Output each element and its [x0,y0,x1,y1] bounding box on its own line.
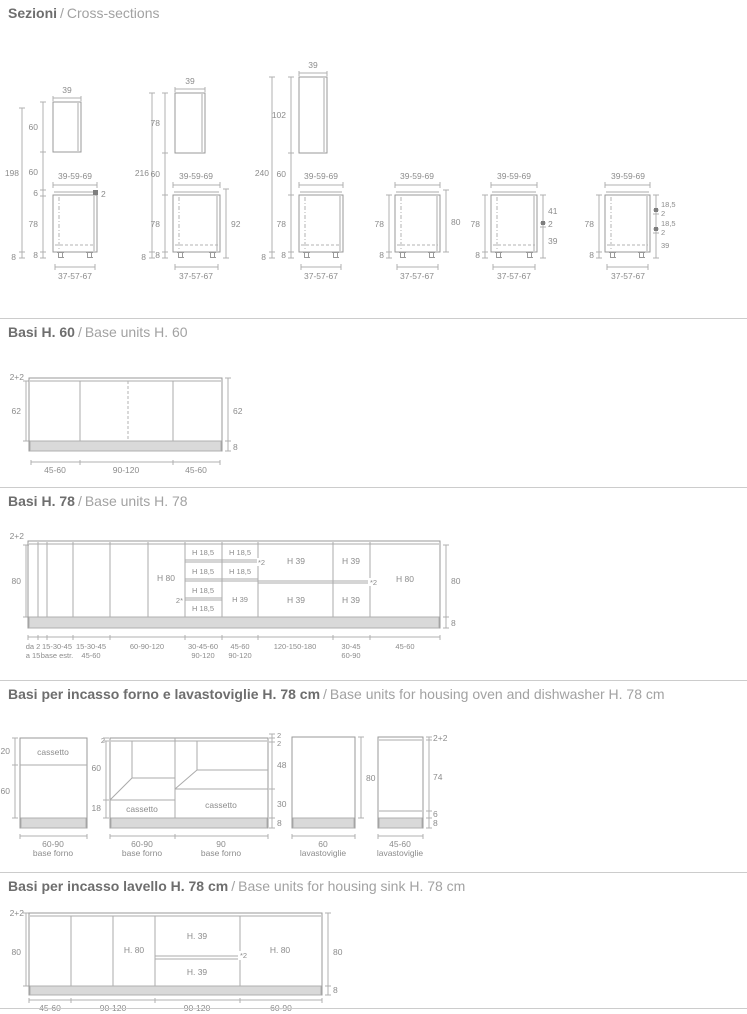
dim-label: 2 [548,219,553,229]
width-label: 45-60 [81,651,100,660]
wall-width-label: 39 [185,76,195,86]
feet-height-label: 8 [11,252,16,262]
base-cabinet-outline [605,195,650,252]
right-height-label: 80 [451,217,461,227]
cross-section-2: 216 8 39 78 60 78 8 39-59-69 92 37-57-67 [135,76,241,281]
wall-cabinet-outline [299,77,327,153]
dim-label: 20 [1,746,11,756]
total-height-label: 198 [5,168,19,178]
cell-label: H. 80 [124,945,145,955]
base-bottom-width-label: 37-57-67 [58,271,92,281]
section-divider [0,680,747,681]
dim-label: 6 [33,188,38,198]
cross-section-3: 240 8 39 102 60 78 8 39-59-69 37-57-67 [255,60,343,281]
dim-label: 74 [433,772,443,782]
width-label: 45-60 [230,642,249,651]
height-label: 80 [333,947,343,957]
section-title-cross-sections: Sezioni/Cross-sections [8,5,160,22]
base-top-width-label: 39-59-69 [611,171,645,181]
section-title-oven-dishwasher: Basi per incasso forno e lavastoviglie H… [8,686,665,703]
section-divider [0,487,747,488]
top-panel-label: 2+2 [10,372,25,382]
right-height-label: 92 [231,219,241,229]
cell-label: H 80 [396,574,414,584]
caption-label: base forno [201,848,241,858]
height-label: 80 [12,576,22,586]
section-divider [0,318,747,319]
width-label: 120-150-180 [274,642,317,651]
base-top-width-label: 39-59-69 [58,171,92,181]
total-height-label: 240 [255,168,269,178]
cell-label: H 18,5 [192,586,214,595]
oven-base-unit-a: 20 60 cassetto 60-90 base forno [1,738,87,858]
base-cabinet-outline [173,195,220,252]
plinth [111,818,267,828]
height-label: 62 [233,406,243,416]
base-units-h78-drawing: 2+2 80 H 80 H 18,5 H 18,5 H 18,5 H 18,5 … [0,530,747,662]
cross-sections-drawing: 198 8 39 60 60 6 78 8 39-59-69 2 37-57-6… [0,55,747,305]
height-label: 80 [12,947,22,957]
plinth [30,986,321,995]
plinth [29,617,439,628]
base-top-width-label: 39-59-69 [497,171,531,181]
width-label: a 15 [26,651,41,660]
base-units-h60-drawing: 2+2 62 62 8 45-60 90-120 45-60 [0,370,747,482]
dim-label: 8 [433,818,438,828]
oven-base-unit-b: 2 60 18 cassetto cassetto 2 2 48 30 8 60… [92,731,287,858]
dim-label: 80 [366,773,376,783]
elevation-outline [29,378,222,451]
section-title-basi-h78: Basi H. 78/Base units H. 78 [8,493,188,510]
dim-label: 60 [29,167,39,177]
dim-label: 8 [277,818,282,828]
base-cabinet-outline [53,195,97,252]
title-separator: / [75,324,85,340]
top-panel-label: 2+2 [10,531,25,541]
width-label: 15-30-45 [42,642,72,651]
title-italian: Basi per incasso lavello H. 78 cm [8,878,228,894]
cell-label: H 39 [287,556,305,566]
base-cabinet-outline [395,195,440,252]
width-label: 60-90 [341,651,360,660]
shelf-marker [654,227,658,231]
drawer-label: cassetto [126,804,158,814]
base-cabinet-outline [299,195,343,252]
page-bottom-divider [0,1008,747,1009]
dishwasher-unit-d: 2+2 74 6 8 45-60 lavastoviglie [377,733,448,858]
dim-label: 78 [585,219,595,229]
dim-label: 2 [661,228,665,237]
title-english: Base units H. 78 [85,493,188,509]
base-top-width-label: 39-59-69 [179,171,213,181]
dim-label: 78 [375,219,385,229]
plinth-label: 8 [233,442,238,452]
cell-label: H 18,5 [229,548,251,557]
panel-marker-label: *2 [258,558,265,567]
dim-label: 60 [151,169,161,179]
total-height-label: 216 [135,168,149,178]
dim-label: 78 [151,219,161,229]
unit-outline [292,737,355,828]
width-label: 15-30-45 [76,642,106,651]
panel-marker-label: *2 [240,951,247,960]
drawer-label: cassetto [205,800,237,810]
width-label: 90-120 [113,465,140,475]
top-panel-label: 2+2 [10,908,25,918]
cell-label: H 39 [342,595,360,605]
dim-label: 41 [548,206,558,216]
dim-label: 78 [29,219,39,229]
cell-label: H 80 [157,573,175,583]
dim-label: 2+2 [433,733,448,743]
feet-height-label: 8 [261,252,266,262]
cell-label: H 18,5 [192,604,214,613]
plinth [379,818,422,828]
shelf-marker [654,208,658,212]
title-italian: Basi per incasso forno e lavastoviglie H… [8,686,320,702]
title-italian: Basi H. 78 [8,493,75,509]
plinth [21,818,86,828]
unit-outline [110,738,268,828]
oven-dishwasher-units-drawing: 20 60 cassetto 60-90 base forno 2 60 18 … [0,720,747,866]
drawer-label: cassetto [37,747,69,757]
section-divider [0,872,747,873]
feet [399,253,435,258]
base-bottom-width-label: 37-57-67 [304,271,338,281]
width-label: 45-60 [185,465,207,475]
plinth [30,441,221,451]
dim-label: 18 [92,803,102,813]
title-english: Cross-sections [67,5,160,21]
dim-label: 2 [277,739,281,748]
cell-label: H 18,5 [192,548,214,557]
cell-label: H. 80 [270,945,291,955]
feet [177,253,216,258]
dim-label: 48 [277,760,287,770]
base-top-width-label: 39-59-69 [304,171,338,181]
feet [57,253,93,258]
title-italian: Basi H. 60 [8,324,75,340]
height-label: 80 [451,576,461,586]
dim-label: 102 [272,110,286,120]
caption-label: lavastoviglie [300,848,347,858]
dim-label: 8 [475,250,480,260]
cross-section-5: 78 8 39-59-69 41 2 39 37-57-67 [471,171,558,281]
sink-units-drawing: 2+2 80 H. 80 H. 39 *2 H. 39 H. 80 80 8 4… [0,905,747,1014]
dim-label: 78 [277,219,287,229]
title-italian: Sezioni [8,5,57,21]
height-label: 62 [12,406,22,416]
title-separator: / [57,5,67,21]
dim-label: 60 [92,763,102,773]
dim-label: 18,5 [661,219,676,228]
cross-section-6: 78 8 39-59-69 18,5 2 18,5 2 39 37-57-67 [585,171,676,281]
base-bottom-width-label: 37-57-67 [400,271,434,281]
title-english: Base units for housing sink H. 78 cm [238,878,465,894]
cell-label: H 39 [232,595,248,604]
dim-label: 8 [281,250,286,260]
cross-section-4: 78 8 39-59-69 80 37-57-67 [375,171,461,281]
feet-height-label: 8 [141,252,146,262]
caption-label: base forno [33,848,73,858]
feet [303,253,339,258]
panel-marker-label: *2 [370,578,377,587]
width-label: base estr. [41,651,74,660]
wall-cabinet-outline [175,93,205,153]
dim-label: 39 [661,241,669,250]
title-separator: / [228,878,238,894]
width-label: 45-60 [44,465,66,475]
dim-label: 2 [661,209,665,218]
title-english: Base units H. 60 [85,324,188,340]
dim-label: 78 [151,118,161,128]
dim-label: 8 [155,250,160,260]
title-separator: / [75,493,85,509]
cross-section-1: 198 8 39 60 60 6 78 8 39-59-69 2 37-57-6… [5,85,106,281]
width-label: 90-120 [191,651,214,660]
unit-outline [378,737,423,828]
title-separator: / [320,686,330,702]
width-label: 45-60 [395,642,414,651]
panel-marker-label: 2* [176,596,183,605]
section-title-sink: Basi per incasso lavello H. 78 cm/Base u… [8,878,465,895]
dim-label: 78 [471,219,481,229]
caption-label: lavastoviglie [377,848,424,858]
width-label: 30-45-60 [188,642,218,651]
dim-label: 60 [29,122,39,132]
dim-label: 39 [548,236,558,246]
cell-label: H 39 [287,595,305,605]
cell-label: H 18,5 [192,567,214,576]
base-bottom-width-label: 37-57-67 [497,271,531,281]
wall-width-label: 39 [62,85,72,95]
shelf-marker [541,221,545,225]
dim-label: 60 [1,786,11,796]
cell-label: H. 39 [187,967,208,977]
width-label: da 2 [26,642,41,651]
feet [495,253,533,258]
catalog-page: Sezioni/Cross-sections 198 8 39 60 60 6 … [0,0,747,1014]
base-bottom-width-label: 37-57-67 [179,271,213,281]
plinth-label: 8 [333,985,338,995]
dim-label: 8 [379,250,384,260]
caption-label: base forno [122,848,162,858]
plinth-label: 8 [451,618,456,628]
dim-label: 8 [33,250,38,260]
worktop-marker [93,190,98,195]
width-label: 90-120 [228,651,251,660]
dim-label: 8 [589,250,594,260]
dim-label: 18,5 [661,200,676,209]
width-label: 60-90-120 [130,642,164,651]
plinth [293,818,354,828]
base-cabinet-outline [491,195,537,252]
title-english: Base units for housing oven and dishwash… [330,686,665,702]
base-top-width-label: 39-59-69 [400,171,434,181]
base-bottom-width-label: 37-57-67 [611,271,645,281]
cell-label: H 39 [342,556,360,566]
wall-cabinet-outline [53,102,81,152]
feet [609,253,645,258]
cell-label: H 18,5 [229,567,251,576]
dim-label: 30 [277,799,287,809]
worktop-thickness-label: 2 [101,189,106,199]
dim-label: 60 [277,169,287,179]
dishwasher-unit-c: 80 60 lavastoviglie [292,737,376,858]
width-label: 30-45 [341,642,360,651]
wall-width-label: 39 [308,60,318,70]
section-title-basi-h60: Basi H. 60/Base units H. 60 [8,324,188,341]
cell-label: H. 39 [187,931,208,941]
